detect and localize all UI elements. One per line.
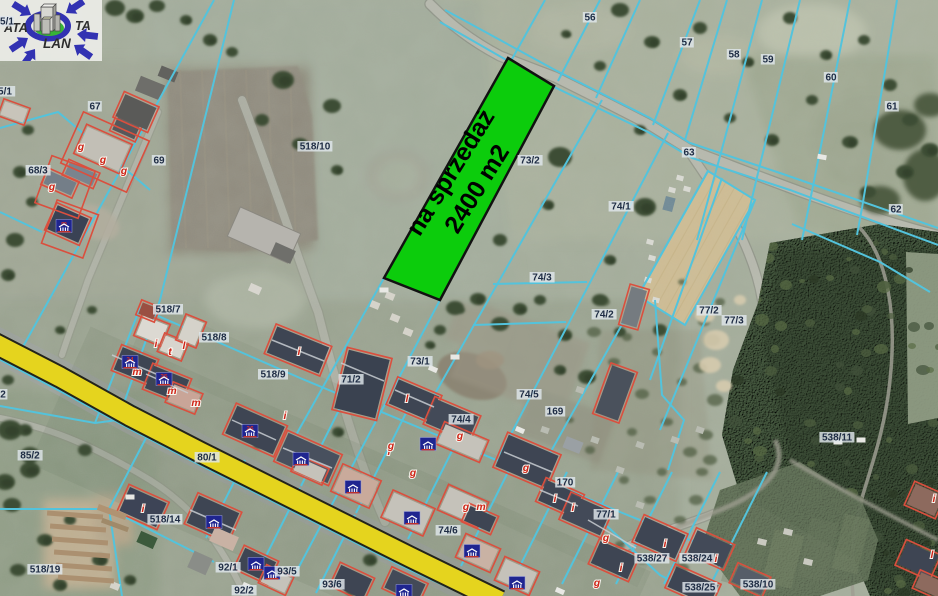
svg-text:67: 67 [89, 102, 101, 113]
svg-text:g: g [456, 430, 464, 442]
svg-text:92/2: 92/2 [234, 586, 254, 596]
svg-text:g: g [462, 501, 470, 513]
svg-text:g: g [387, 440, 395, 452]
svg-text:61: 61 [886, 102, 898, 113]
svg-text:518/19: 518/19 [30, 565, 61, 576]
svg-text:LAN: LAN [43, 36, 71, 51]
svg-text:t: t [168, 346, 172, 358]
svg-text:g: g [99, 154, 107, 166]
svg-text:170: 170 [557, 478, 574, 489]
svg-text:TA: TA [75, 19, 91, 33]
svg-text:5/1: 5/1 [0, 87, 12, 98]
svg-text:518/10: 518/10 [300, 142, 331, 153]
svg-text:538/11: 538/11 [822, 433, 852, 444]
svg-text:60: 60 [825, 73, 837, 84]
svg-text:59: 59 [762, 55, 774, 66]
svg-text:538/10: 538/10 [743, 580, 774, 591]
svg-text:538/25: 538/25 [685, 583, 716, 594]
svg-text:93/5: 93/5 [277, 567, 297, 578]
svg-text:g: g [77, 141, 85, 153]
svg-text:g: g [602, 532, 610, 544]
svg-text:80/1: 80/1 [197, 453, 217, 464]
svg-text:85/2: 85/2 [20, 451, 40, 462]
svg-text:518/14: 518/14 [150, 515, 181, 526]
svg-text:63: 63 [683, 148, 695, 159]
svg-text:518/9: 518/9 [260, 370, 285, 381]
svg-text:93/6: 93/6 [322, 580, 342, 591]
svg-text:518/7: 518/7 [155, 305, 180, 316]
svg-text:74/3: 74/3 [532, 273, 552, 284]
svg-text:g: g [120, 165, 128, 177]
svg-text:538/27: 538/27 [637, 554, 668, 565]
svg-text:m: m [191, 397, 200, 409]
svg-text:74/6: 74/6 [438, 526, 458, 537]
svg-text:71/2: 71/2 [341, 375, 361, 386]
svg-text:74/5: 74/5 [519, 390, 539, 401]
svg-text:g: g [48, 181, 56, 193]
svg-text:74/1: 74/1 [611, 202, 631, 213]
svg-text:56: 56 [584, 13, 596, 24]
svg-text:518/8: 518/8 [201, 333, 226, 344]
svg-text:68/3: 68/3 [28, 166, 48, 177]
svg-text:77/3: 77/3 [724, 316, 744, 327]
svg-text:g: g [522, 462, 530, 474]
svg-text:2: 2 [0, 390, 6, 401]
svg-text:g: g [593, 577, 601, 589]
svg-text:169: 169 [547, 407, 564, 418]
svg-text:69: 69 [153, 156, 165, 167]
svg-text:57: 57 [681, 38, 693, 49]
svg-text:74/2: 74/2 [594, 310, 614, 321]
svg-text:77/2: 77/2 [699, 306, 719, 317]
svg-text:m: m [167, 385, 176, 397]
svg-text:62: 62 [890, 205, 902, 216]
svg-text:92/1: 92/1 [218, 563, 238, 574]
svg-text:74/4: 74/4 [451, 415, 471, 426]
svg-text:538/24: 538/24 [682, 554, 713, 565]
svg-text:58: 58 [728, 50, 740, 61]
svg-text:73/1: 73/1 [410, 357, 430, 368]
svg-text:m: m [476, 501, 485, 513]
svg-text:5/1: 5/1 [0, 17, 14, 28]
svg-text:73/2: 73/2 [520, 156, 540, 167]
svg-text:g: g [409, 467, 417, 479]
svg-text:77/1: 77/1 [596, 510, 616, 521]
